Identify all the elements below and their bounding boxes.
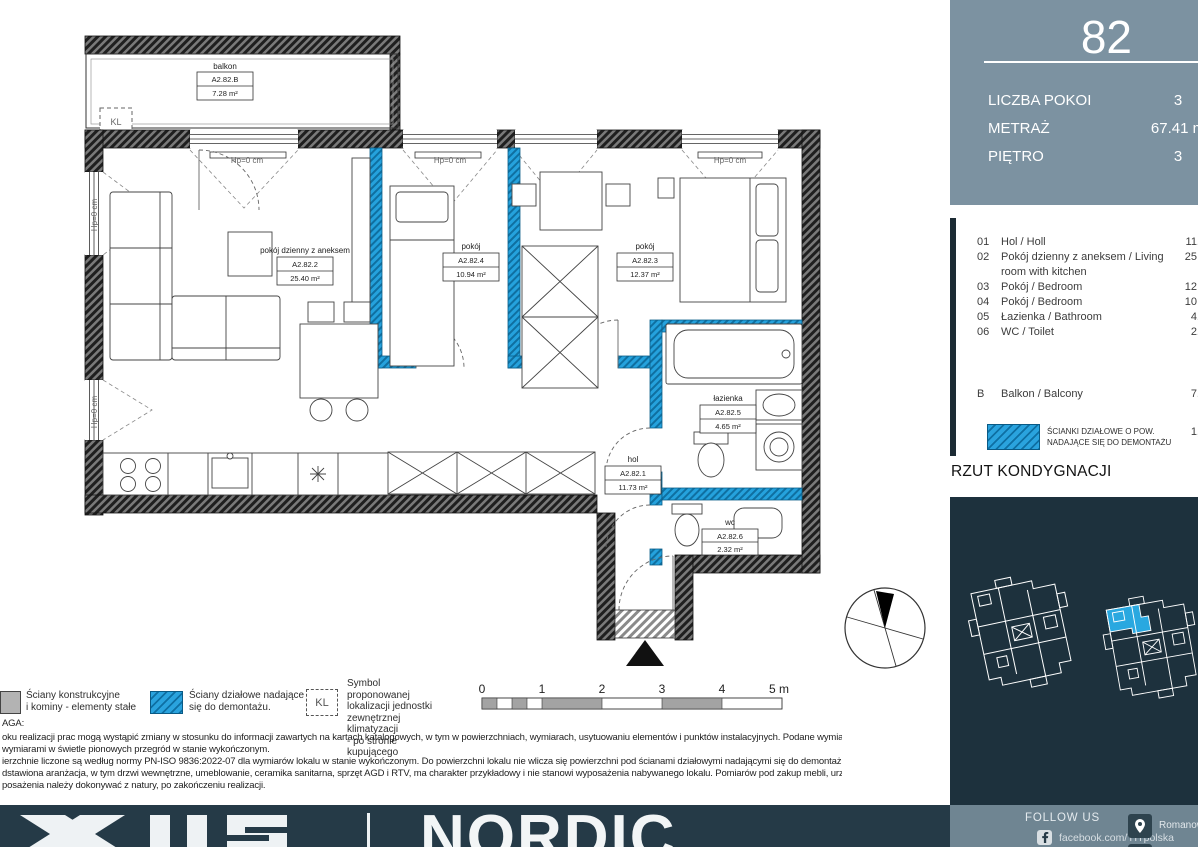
kitchen: [103, 453, 390, 495]
label-lazienka: łazienka A2.82.5 4.65 m²: [700, 394, 756, 433]
logo-divider: [367, 813, 370, 847]
svg-text:A2.82.1: A2.82.1: [620, 469, 646, 478]
notes-line: wymiarami w świetle pionowych przegród w…: [2, 744, 842, 756]
svg-text:7.28 m²: 7.28 m²: [212, 89, 238, 98]
toilet-wc: [672, 504, 702, 546]
partition-note: ŚCIANKI DZIAŁOWE O POW. NADAJĄCE SIĘ DO …: [950, 424, 1198, 450]
label-hol: hol A2.82.1 11.73 m²: [605, 455, 661, 494]
svg-text:10.94 m²: 10.94 m²: [456, 270, 486, 279]
svg-text:Hp=0 cm: Hp=0 cm: [231, 156, 264, 165]
room-row: 02Pokój dzienny z aneksem / Living room …: [950, 250, 1198, 280]
north-arrow: [845, 588, 925, 668]
apartment-number: 82: [950, 10, 1132, 64]
entrance: [615, 610, 675, 666]
dining-table: [300, 302, 378, 421]
partition-swatch: [987, 424, 1040, 450]
svg-text:wc: wc: [724, 518, 735, 527]
highlighted-unit: [1106, 603, 1151, 637]
yit-logo: [15, 813, 415, 847]
address-label: Romanowicza: [1159, 820, 1198, 831]
partition-note-label: ŚCIANKI DZIAŁOWE O POW. NADAJĄCE SIĘ DO …: [1047, 426, 1171, 448]
toilet-bathroom: [694, 432, 728, 477]
ac-unit-symbol-label: KL: [110, 117, 121, 127]
room-row: 05Łazienka / Bathroom4.: [950, 310, 1198, 325]
svg-text:Hp=0 cm: Hp=0 cm: [90, 396, 99, 429]
svg-text:3: 3: [659, 682, 666, 696]
svg-text:A2.82.B: A2.82.B: [212, 75, 239, 84]
room-list-panel: 01Hol / Holl11. 02Pokój dzienny z anekse…: [950, 205, 1198, 497]
svg-text:0: 0: [479, 682, 486, 696]
svg-text:4: 4: [719, 682, 726, 696]
svg-text:A2.82.2: A2.82.2: [292, 260, 318, 269]
svg-text:4.65 m²: 4.65 m²: [715, 422, 741, 431]
notes-line: dstawiona aranżacja, w tym drzwi wewnętr…: [2, 768, 842, 780]
svg-text:pokój: pokój: [635, 242, 654, 251]
balcony-row: BBalkon / Balcony7.: [950, 387, 1198, 402]
hall-closets: [388, 452, 595, 494]
divider: [984, 61, 1198, 63]
notes-line: oku realizacji prac mogą wystąpić zmiany…: [2, 732, 842, 744]
storey-map-panel: [950, 497, 1198, 805]
svg-text:25.40 m²: 25.40 m²: [290, 274, 320, 283]
desk-and-chairs: [512, 172, 630, 230]
scale-bar: 0 1 2 3 4 5 m: [479, 682, 789, 709]
footer-brand-bar: NORDIC: [0, 805, 950, 847]
svg-text:A2.82.3: A2.82.3: [632, 256, 658, 265]
floor-plan: KL: [0, 0, 950, 735]
svg-text:A2.82.5: A2.82.5: [715, 408, 741, 417]
svg-text:11.73 m²: 11.73 m²: [618, 483, 648, 492]
svg-text:balkon: balkon: [213, 62, 237, 71]
entrance-arrow: [626, 640, 664, 666]
label-living: pokój dzienny z aneksem A2.82.2 25.40 m²: [260, 246, 350, 285]
notes-line: ierzchnie liczone są według normy PN-ISO…: [2, 756, 842, 768]
legend-walls-label: Ściany konstrukcyjnei kominy - elementy …: [26, 690, 136, 714]
floorplan-page: KL: [0, 0, 1198, 847]
location-pin-icon: [1134, 819, 1146, 833]
svg-text:pokój dzienny z aneksem: pokój dzienny z aneksem: [260, 246, 350, 255]
room-row: 03Pokój / Bedroom12.: [950, 280, 1198, 295]
building-a-thumbnail: [961, 567, 1082, 697]
room-row: 04Pokój / Bedroom10.: [950, 295, 1198, 310]
section-title: RZUT KONDYGNACJI: [951, 463, 1198, 481]
label-balkon: balkon A2.82.B 7.28 m²: [197, 62, 253, 100]
stat-rooms: LICZBA POKOI 3: [950, 92, 1198, 112]
notes-heading: AGA:: [2, 718, 842, 730]
svg-text:pokój: pokój: [461, 242, 480, 251]
bathtub: [666, 324, 802, 384]
notes-line: posażenia należy dokonywać z natury, po …: [2, 780, 842, 792]
svg-text:A2.82.6: A2.82.6: [717, 532, 743, 541]
svg-text:12.37 m²: 12.37 m²: [630, 270, 660, 279]
room-row: 06WC / Toilet2.: [950, 325, 1198, 340]
svg-text:5 m: 5 m: [769, 682, 789, 696]
brand-nordic: NORDIC: [420, 808, 677, 847]
bed-double: [658, 178, 786, 302]
washing-machine: [756, 424, 802, 470]
bathroom-sink: [756, 390, 802, 420]
legend-walls-swatch: [0, 691, 21, 714]
legend-ac-symbol: KL: [306, 689, 338, 716]
building-b-thumbnail: [1098, 588, 1198, 705]
label-pokoj3: pokój A2.82.3 12.37 m²: [617, 242, 673, 281]
svg-text:Hp=0 cm: Hp=0 cm: [714, 156, 747, 165]
svg-text:Hp=0 cm: Hp=0 cm: [90, 199, 99, 232]
stat-floor: PIĘTRO 3: [950, 148, 1198, 168]
fridge-symbol: [310, 466, 326, 482]
stat-area: METRAŻ 67.41 m: [950, 120, 1198, 140]
facebook-handle[interactable]: facebook.com/YITpolska: [1059, 832, 1174, 844]
wardrobe: [522, 246, 598, 388]
svg-text:2.32 m²: 2.32 m²: [717, 545, 743, 554]
tv-unit: [352, 158, 370, 308]
svg-text:2: 2: [599, 682, 606, 696]
legend-partitions-label: Ściany działowe nadającesię do demontażu…: [189, 690, 304, 714]
room-row: 01Hol / Holl11.: [950, 235, 1198, 250]
svg-text:hol: hol: [628, 455, 639, 464]
footer-social-bar: FOLLOW US facebook.com/YITpolska Romanow…: [950, 805, 1198, 847]
svg-text:1: 1: [539, 682, 546, 696]
svg-text:A2.82.4: A2.82.4: [458, 256, 484, 265]
apartment-summary-panel: 82 LICZBA POKOI 3 METRAŻ 67.41 m PIĘTRO …: [950, 0, 1198, 205]
notes: AGA: oku realizacji prac mogą wystąpić z…: [2, 718, 842, 792]
facebook-icon[interactable]: [1037, 830, 1052, 845]
svg-text:Hp=0 cm: Hp=0 cm: [434, 156, 467, 165]
location-badge: [1128, 814, 1152, 838]
follow-us-label: FOLLOW US: [1025, 812, 1100, 824]
site-map: [950, 497, 1198, 805]
legend-partitions-swatch: [150, 691, 183, 714]
svg-text:łazienka: łazienka: [713, 394, 743, 403]
facebook-link[interactable]: facebook.com/YITpolska: [1037, 830, 1174, 845]
